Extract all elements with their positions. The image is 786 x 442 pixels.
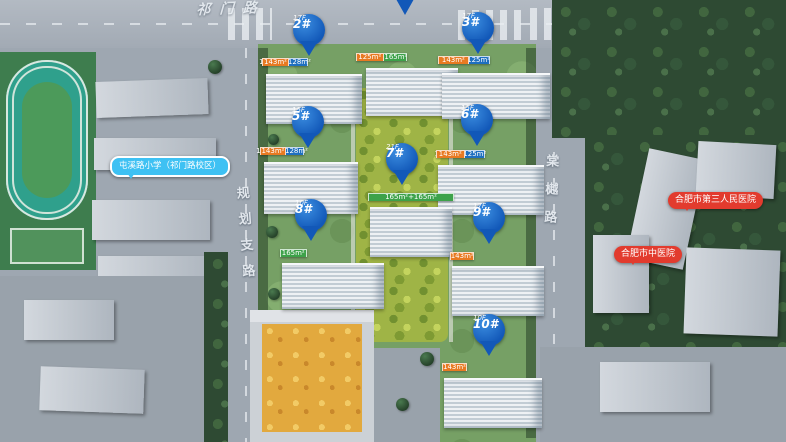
unit-area-label: 143m²: [436, 150, 465, 158]
building-3-unit-strip: 143m² 125m²+125m² 143m²: [438, 56, 552, 71]
tree: [396, 398, 409, 411]
building-8-pin[interactable]: 8# 10F: [295, 199, 327, 231]
building-floors: 17F: [473, 202, 486, 210]
neighborhood-building: [39, 366, 144, 414]
tree-belt: [552, 0, 786, 138]
building-9-unit-strip: 143m² 125m² 125m² 143m²: [450, 252, 544, 267]
unit-area-label: 165m²+165m²: [368, 193, 454, 201]
building-floors: 15F: [292, 106, 305, 114]
kindergarten: [250, 310, 374, 442]
track-infield: [22, 82, 72, 198]
kindergarten-playground: [262, 324, 362, 432]
running-track: [6, 60, 88, 220]
sports-field: [0, 52, 96, 270]
building-floors: 10F: [473, 314, 486, 322]
neighborhood-building: [600, 362, 710, 412]
school-building: [92, 200, 210, 240]
unit-area-label: 143m²: [260, 147, 286, 155]
school-building: [95, 78, 208, 118]
building-7-unit-strip: 165m²+165m²: [368, 193, 454, 208]
tree: [208, 60, 222, 74]
sports-court: [10, 228, 84, 264]
building-2-pin[interactable]: 2# 17F: [293, 14, 325, 46]
tree: [266, 226, 278, 238]
hospital-building: [696, 141, 777, 199]
tree-belt: [204, 252, 228, 442]
building-10-pin[interactable]: 10# 10F: [473, 314, 505, 346]
building-9: [452, 266, 544, 316]
building-floors: 17F: [293, 14, 306, 22]
building-10: [444, 378, 542, 428]
building-3-pin[interactable]: 3# 17F: [462, 12, 494, 44]
building-5-pin[interactable]: 5# 15F: [292, 106, 324, 138]
poi-hospital-1-bubble[interactable]: 合肥市第三人民医院: [668, 192, 763, 209]
unit-area-label: 143m²: [262, 58, 289, 66]
unit-area-label: 143m²: [438, 56, 469, 64]
site-plan-map: 125m² 165m²+165m² 125m² 143m² 128m²+128m…: [0, 0, 786, 442]
building-8: [282, 263, 384, 309]
unit-area-label: 143m²: [442, 363, 467, 371]
hospital-building: [684, 247, 781, 336]
hospital-grounds: [585, 135, 786, 347]
building-3: [442, 73, 550, 119]
tree: [420, 352, 434, 366]
unit-area-label: 143m²: [450, 252, 474, 260]
road-name-tangyue: 棠樾路: [539, 154, 561, 239]
building-6-unit-strip: 143m² 125m²+125m² 143m²: [436, 150, 542, 165]
kindergarten-roof: [250, 310, 374, 322]
tree: [268, 134, 279, 145]
neighborhood-building: [24, 300, 114, 340]
building-floors: 10F: [295, 199, 308, 207]
building-floors: 15F: [461, 104, 474, 112]
building-1-pin-clipped[interactable]: [396, 0, 414, 24]
building-floors: 17F: [462, 12, 475, 20]
building-7-pin[interactable]: 7# 21F: [386, 143, 418, 175]
building-8-unit-strip: 165m² 165m² 165m² 165m²: [280, 249, 386, 264]
road-name-qimen: 祁门路: [195, 0, 271, 19]
poi-school-bubble[interactable]: 屯溪路小学（祁门路校区）: [110, 156, 230, 177]
tree: [268, 288, 280, 300]
road-name-guihua-zhilu: 规划支路: [231, 185, 257, 290]
building-9-pin[interactable]: 9# 17F: [473, 202, 505, 234]
building-floors: 21F: [386, 143, 399, 151]
building-10-unit-strip: 143m² 143m² 143m² 143m²: [442, 363, 542, 378]
building-6-pin[interactable]: 6# 15F: [461, 104, 493, 136]
unit-area-label: 165m²: [280, 249, 307, 257]
poi-hospital-2-bubble[interactable]: 合肥市中医院: [614, 246, 682, 263]
